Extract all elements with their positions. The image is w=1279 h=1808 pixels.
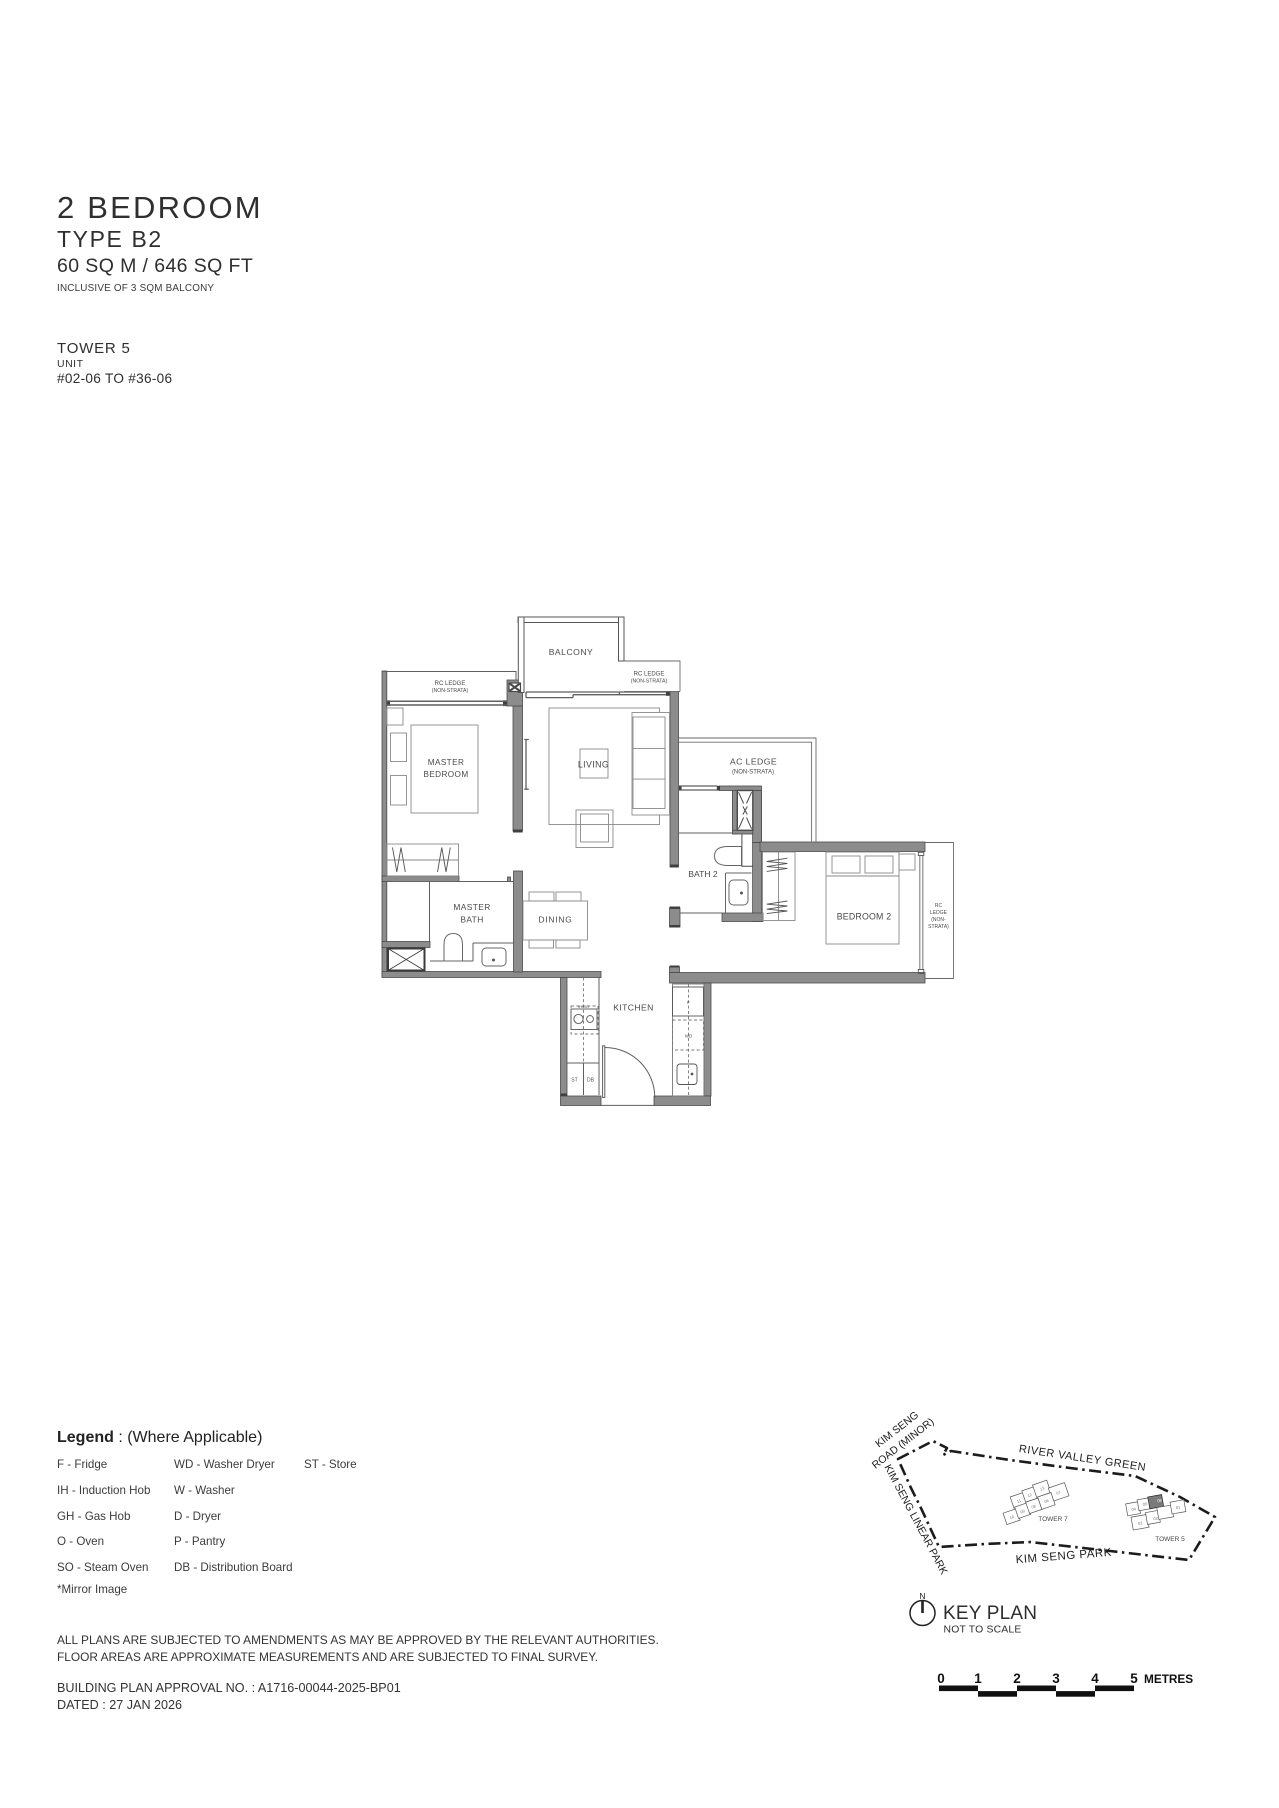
svg-text:ST: ST [571,1078,577,1084]
svg-text:KIM SENG PARK: KIM SENG PARK [1015,1547,1112,1567]
svg-text:RC: RC [935,903,943,909]
svg-text:KITCHEN: KITCHEN [613,1003,654,1013]
svg-text:BEDROOM: BEDROOM [423,770,468,779]
svg-text:MASTER: MASTER [453,902,490,912]
svg-text:TOWER 7: TOWER 7 [1038,1516,1068,1523]
svg-text:4: 4 [1091,1671,1099,1686]
svg-text:F: F [687,1000,690,1005]
svg-text:RC LEDGE: RC LEDGE [634,672,665,678]
svg-text:AC LEDGE: AC LEDGE [730,757,777,767]
svg-text:METRES: METRES [1144,1672,1193,1686]
svg-text:3: 3 [1052,1671,1060,1686]
svg-text:5: 5 [1130,1671,1138,1686]
svg-text:RC LEDGE: RC LEDGE [435,681,466,687]
svg-text:KIM SENG LINEAR PARK: KIM SENG LINEAR PARK [881,1463,949,1577]
svg-text:(NON-STRATA): (NON-STRATA) [631,679,668,685]
svg-text:N: N [919,1591,925,1601]
svg-text:2: 2 [1013,1671,1021,1686]
svg-text:BATH: BATH [460,915,483,925]
svg-text:WD: WD [685,1034,693,1039]
svg-text:KEY PLAN: KEY PLAN [943,1603,1037,1624]
svg-text:BEDROOM 2: BEDROOM 2 [837,912,892,922]
svg-text:TOWER 5: TOWER 5 [1155,1536,1185,1543]
svg-text:NOT TO SCALE: NOT TO SCALE [944,1625,1022,1636]
svg-text:LEDGE: LEDGE [930,910,948,916]
svg-text:LIVING: LIVING [578,760,609,770]
svg-text:(NON-STRATA): (NON-STRATA) [432,688,469,694]
svg-text:DB: DB [587,1078,595,1084]
svg-text:MASTER: MASTER [428,758,465,767]
svg-text:STRATA): STRATA) [928,924,949,930]
svg-text:(NON-STRATA): (NON-STRATA) [732,770,774,776]
svg-text:0: 0 [937,1671,945,1686]
svg-text:BATH 2: BATH 2 [688,869,718,879]
svg-text:IH/GO: IH/GO [578,1004,589,1009]
svg-text:DINING: DINING [538,915,572,925]
svg-text:(NON-: (NON- [931,917,946,923]
svg-text:BALCONY: BALCONY [549,647,594,657]
svg-text:1: 1 [974,1671,982,1686]
